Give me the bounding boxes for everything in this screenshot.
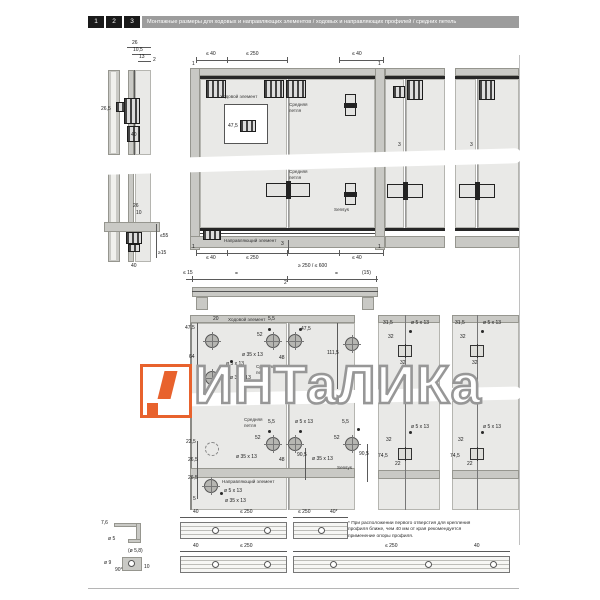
dim-label: 47,5 xyxy=(228,124,238,130)
dim-label: 52 xyxy=(334,436,340,442)
dim-line xyxy=(293,517,348,518)
dim-line xyxy=(186,279,378,280)
dim-label: 26 xyxy=(132,41,138,47)
profile-top-view xyxy=(192,287,378,297)
hinge-pin xyxy=(344,103,357,108)
bottom-rail-section xyxy=(104,222,160,232)
step-badge-3: 3 xyxy=(124,16,140,28)
pilot-hole xyxy=(268,328,271,331)
guide-profile-line xyxy=(200,233,375,234)
dim-label: ø 35 x 13 xyxy=(225,499,246,505)
door-panel xyxy=(289,323,355,510)
component-label: Направляющий элемент xyxy=(222,479,274,484)
dim-label: ø 9 xyxy=(104,561,111,567)
section-hole xyxy=(128,560,135,567)
rail-profile xyxy=(293,556,510,573)
watermark-logo-square xyxy=(147,403,158,417)
pilot-hole xyxy=(299,430,302,433)
dim-line xyxy=(139,142,140,154)
dim-label: 26 xyxy=(133,204,139,210)
dim-tick xyxy=(227,250,228,256)
dim-label: 47,5 xyxy=(185,326,195,332)
dim-tick xyxy=(196,57,197,63)
hinge-icon xyxy=(345,183,356,205)
drill-hole xyxy=(288,437,302,451)
dim-tick xyxy=(196,250,197,256)
dim-label: 22,5 xyxy=(186,440,196,446)
guide-profile xyxy=(200,228,375,231)
component-label: Ходовой элемент xyxy=(220,94,257,99)
pilot-hole xyxy=(481,431,484,434)
guide-icon xyxy=(203,230,221,240)
dim-label: 90,5 xyxy=(359,452,369,458)
runner-icon xyxy=(393,86,405,98)
dim-label: 32 xyxy=(458,438,464,444)
dim-label: 32 xyxy=(388,335,394,341)
dim-line xyxy=(293,551,510,552)
dim-label: ≤ 250 xyxy=(246,256,258,262)
component-label: Средняя xyxy=(289,169,308,174)
step-badge-1: 1 xyxy=(88,16,104,28)
guide-profile xyxy=(455,228,519,231)
drill-hole xyxy=(288,334,302,348)
dim-line xyxy=(197,323,198,341)
dim-label: 3 xyxy=(398,143,401,149)
top-board xyxy=(190,68,385,76)
dim-label: 52 xyxy=(257,333,263,339)
dim-label: 40 xyxy=(131,133,137,139)
rail-hole xyxy=(212,561,219,568)
component-label: Sensys xyxy=(337,465,352,470)
dim-label: 10,5 xyxy=(133,48,143,54)
dim-label: ø 35 x 13 xyxy=(236,455,257,461)
hinge-icon xyxy=(387,184,423,198)
dim-tick xyxy=(383,57,384,63)
board-core xyxy=(111,72,116,153)
dim-label: 47,5 xyxy=(301,327,311,333)
dim-label: 10 xyxy=(136,211,142,217)
dim-label: 10 xyxy=(144,565,150,571)
dim-label: 74,5 xyxy=(450,454,460,460)
dim-label: 1 xyxy=(192,245,195,251)
dim-label: 32 xyxy=(460,335,466,341)
board-core xyxy=(111,170,116,260)
dim-tick xyxy=(287,57,288,63)
bottom-board xyxy=(455,236,519,248)
dim-label: 40* xyxy=(330,510,338,516)
watermark-logo xyxy=(140,364,192,418)
dim-label: 52 xyxy=(255,436,261,442)
dim-label: ≤ 250 xyxy=(298,510,310,516)
runner-icon xyxy=(124,98,140,124)
runner-icon xyxy=(479,80,495,100)
hinge-pin xyxy=(344,192,357,197)
catalog-page: 1 2 3 Монтажные размеры для ходовых и на… xyxy=(0,0,600,600)
dim-label: ≤ 40 xyxy=(352,52,362,58)
component-label: Sensys xyxy=(334,207,349,212)
dim-tick xyxy=(227,57,228,63)
rail-hole xyxy=(264,527,271,534)
dim-label: 26,5 xyxy=(188,476,198,482)
dim-label: 31,5 xyxy=(383,321,393,327)
guide-icon xyxy=(128,244,140,252)
dim-label: ≤ 15 xyxy=(183,271,193,277)
profile-center-line xyxy=(192,291,378,292)
runner-icon xyxy=(240,120,256,132)
hinge-icon xyxy=(266,183,310,197)
bottom-profile-band xyxy=(378,470,440,479)
profile-leg xyxy=(362,297,374,310)
dim-label: 2 xyxy=(153,58,156,64)
dim-line xyxy=(196,253,288,254)
dim-label: (ø 5,8) xyxy=(128,549,143,555)
component-label: Средняя xyxy=(244,417,263,422)
component-label: Направляющий элемент xyxy=(224,238,276,243)
component-label: петля xyxy=(244,423,256,428)
pilot-hole xyxy=(220,492,223,495)
bottom-board xyxy=(385,236,445,248)
dim-label: ø 5 x 13 xyxy=(483,425,501,431)
runner-icon xyxy=(407,80,423,100)
drill-hole xyxy=(205,334,219,348)
dim-label: = xyxy=(235,272,238,278)
dim-label: 3 xyxy=(281,242,284,248)
profile-section-icon xyxy=(136,523,141,540)
rail-hole xyxy=(490,561,497,568)
pilot-hole xyxy=(409,431,412,434)
dim-label: ø 35 x 13 xyxy=(312,457,333,463)
dim-label: 31,5 xyxy=(455,321,465,327)
step-badge-2: 2 xyxy=(106,16,122,28)
rail-hole xyxy=(212,527,219,534)
dim-label: 40 xyxy=(193,544,199,550)
dim-line xyxy=(288,253,384,254)
dim-line xyxy=(367,444,368,482)
dim-tick xyxy=(339,250,340,256)
dim-label: ≤ 250 xyxy=(385,544,397,550)
door-junction-line xyxy=(288,323,289,510)
guide-icon xyxy=(126,232,142,244)
pilot-hole xyxy=(409,330,412,333)
profile-leg xyxy=(196,297,208,310)
dim-line xyxy=(196,60,288,61)
dim-label: 5,5 xyxy=(268,420,275,426)
hinge-icon xyxy=(459,184,495,198)
dim-label: ≤ 250 xyxy=(240,510,252,516)
dim-label: ø 5 x 13 xyxy=(295,420,313,426)
dim-label: ø 5 x 13 xyxy=(224,489,242,495)
dim-label: ø 5 x 13 xyxy=(411,321,429,327)
dim-label: ≤55 xyxy=(160,234,168,240)
dim-label: ≤ 250 xyxy=(246,52,258,58)
door-panel xyxy=(200,79,287,228)
watermark-text: ИНТаЛИКа xyxy=(194,358,482,412)
dim-label: 40 xyxy=(131,264,137,270)
dim-tick xyxy=(287,250,288,256)
dim-label: 5,5 xyxy=(342,420,349,426)
dim-label: ≤ 250 xyxy=(240,544,252,550)
drill-hole-ghost xyxy=(205,442,219,456)
dim-label: 1 xyxy=(378,62,381,68)
drill-hole xyxy=(266,437,280,451)
dim-label: 5,5 xyxy=(268,317,275,323)
guide-profile xyxy=(385,228,445,231)
dim-label: 48 xyxy=(279,458,285,464)
dim-tick xyxy=(376,276,377,282)
profile-section-icon xyxy=(128,539,141,543)
watermark-logo-bar xyxy=(158,371,178,399)
drill-hole xyxy=(266,334,280,348)
runner-icon xyxy=(286,80,306,98)
dim-label: ≤ 40 xyxy=(352,256,362,262)
profile-clip-icon xyxy=(470,448,484,460)
dim-line xyxy=(180,517,287,518)
dim-label: ≤ 40 xyxy=(206,256,216,262)
top-board xyxy=(385,68,445,76)
hinge-pin xyxy=(286,181,291,199)
dim-label: (15) xyxy=(362,271,371,277)
dim-label: 90° xyxy=(115,568,123,574)
component-label: петля xyxy=(289,175,301,180)
dim-line xyxy=(288,240,289,253)
footnote-text: * При расположении первого отверстия для… xyxy=(348,521,480,540)
dim-label: 40 xyxy=(474,544,480,550)
page-border-bottom xyxy=(88,588,519,589)
hinge-pin xyxy=(475,182,480,200)
dim-label: ≥15 xyxy=(158,251,166,257)
dim-label: 2 xyxy=(284,281,287,287)
rail-hole xyxy=(264,561,271,568)
dim-tick xyxy=(339,57,340,63)
dim-label: 13 xyxy=(139,55,145,61)
dim-label: 26,5 xyxy=(188,458,198,464)
dim-label: ø 5 xyxy=(108,537,115,543)
dim-label: = xyxy=(335,272,338,278)
profile-clip-icon xyxy=(398,448,412,460)
header-title: Монтажные размеры для ходовых и направля… xyxy=(142,16,519,28)
hinge-icon xyxy=(345,94,356,116)
dim-label: 26,5 xyxy=(101,107,111,113)
component-label: Ходовой элемент xyxy=(228,317,265,322)
dim-label: ≤ 40 xyxy=(206,52,216,58)
dim-line xyxy=(156,224,157,258)
component-label: петля xyxy=(289,108,301,113)
dim-label: ≥ 250 / ≤ 600 xyxy=(298,264,327,270)
dim-label: 3 xyxy=(470,143,473,149)
top-board xyxy=(455,68,519,76)
dim-label: 1 xyxy=(378,245,381,251)
bottom-profile-band xyxy=(452,470,519,479)
dim-line xyxy=(138,61,151,62)
dim-tick xyxy=(287,276,288,282)
page-border-right xyxy=(519,55,520,545)
dim-label: 22 xyxy=(467,462,473,468)
dim-label: ø 5 x 13 xyxy=(411,425,429,431)
runner-icon xyxy=(264,80,284,98)
pilot-hole xyxy=(357,428,360,431)
dim-label: 7,6 xyxy=(101,521,108,527)
dim-label: 5 xyxy=(193,497,196,503)
pilot-hole xyxy=(268,430,271,433)
dim-line xyxy=(180,551,287,552)
dim-label: 20 xyxy=(213,317,219,323)
component-label: Средняя xyxy=(289,102,308,107)
drill-hole xyxy=(345,337,359,351)
dim-tick xyxy=(383,250,384,256)
rail-hole xyxy=(330,561,337,568)
dim-line xyxy=(197,441,198,499)
dim-label: ø 5 x 13 xyxy=(483,321,501,327)
dim-label: 32 xyxy=(386,438,392,444)
pilot-hole xyxy=(481,330,484,333)
dim-label: 74,5 xyxy=(378,454,388,460)
rail-hole xyxy=(318,527,325,534)
hinge-pin xyxy=(403,182,408,200)
dim-label: 90,5 xyxy=(297,453,307,459)
dim-label: 40 xyxy=(193,510,199,516)
bottom-profile-band xyxy=(190,468,355,478)
rail-hole xyxy=(425,561,432,568)
drill-hole xyxy=(345,437,359,451)
dim-label: 22 xyxy=(395,462,401,468)
dim-tick xyxy=(192,276,193,282)
dim-label: 1 xyxy=(192,62,195,68)
drill-hole xyxy=(204,479,218,493)
